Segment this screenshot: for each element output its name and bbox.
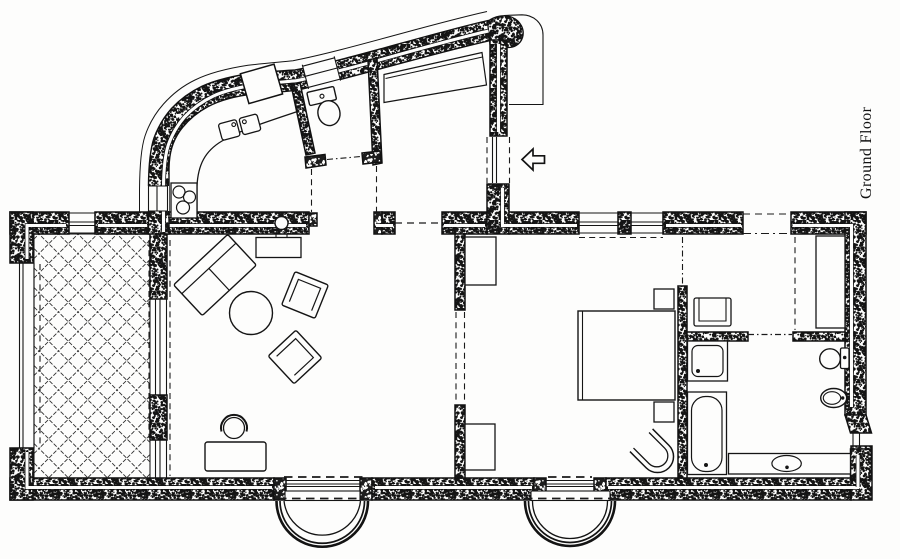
svg-text:Ground Floor: Ground Floor <box>858 106 875 199</box>
